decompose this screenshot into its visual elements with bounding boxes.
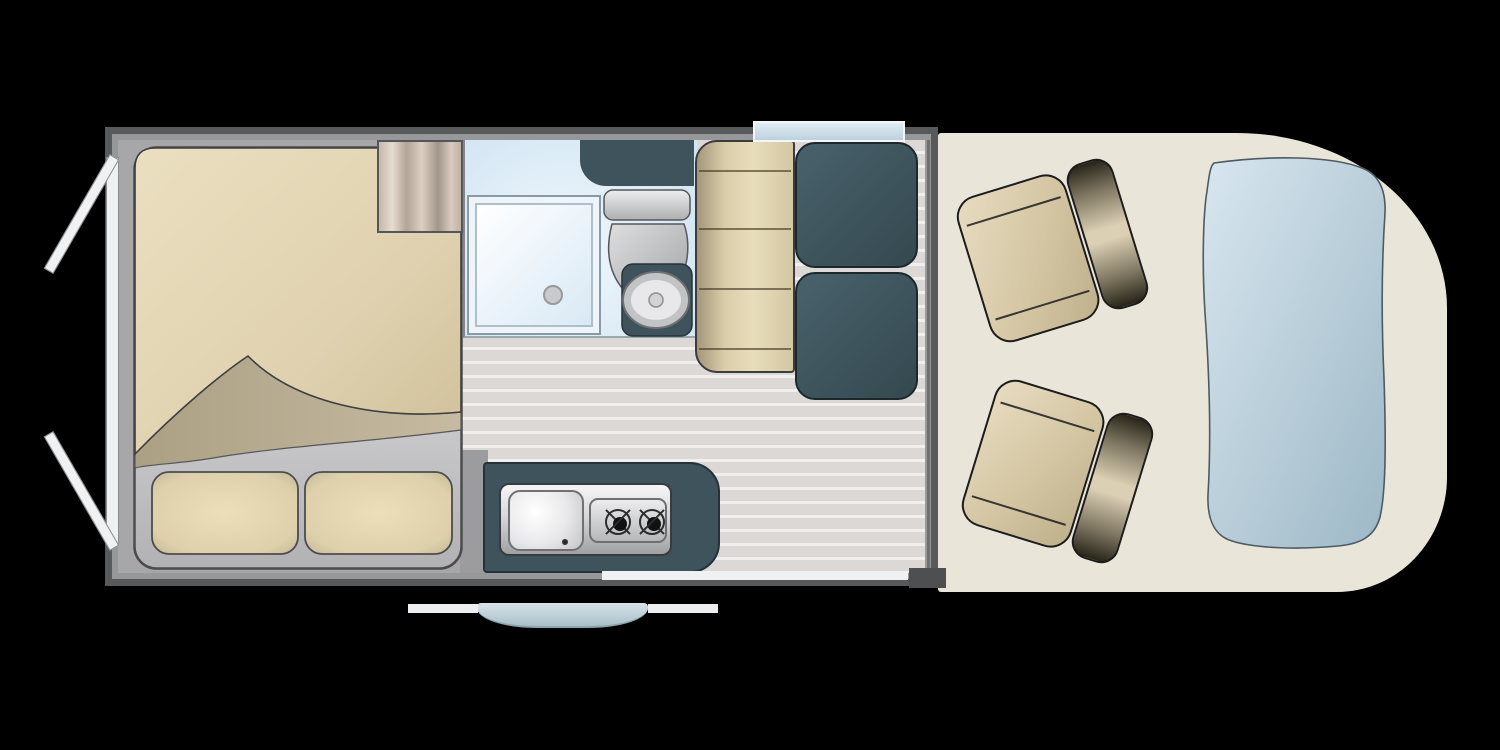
- side-rail-left: [408, 604, 478, 613]
- bathroom-cabinet: [580, 140, 694, 186]
- rear-door-opening: [106, 157, 119, 545]
- shower-drain: [543, 285, 563, 305]
- cushion-seam: [967, 196, 1061, 227]
- dinette-seat-cushion: [795, 272, 918, 400]
- windshield: [1180, 153, 1402, 557]
- pillow-left: [152, 472, 298, 554]
- cushion-seam: [1000, 402, 1094, 433]
- backrest-seam: [699, 170, 791, 172]
- toilet-flush: [649, 293, 663, 307]
- cushion-seam: [972, 495, 1066, 526]
- living-interior: [118, 140, 925, 573]
- burner-center: [613, 517, 627, 531]
- toilet: [600, 182, 696, 340]
- burner-center: [647, 517, 661, 531]
- sink-hob-unit: [499, 483, 672, 556]
- dinette-backrest: [695, 140, 795, 373]
- sliding-door-sill: [602, 571, 908, 580]
- cushion-seam: [995, 290, 1089, 321]
- shower-tray: [467, 195, 601, 335]
- cab-partition-line: [927, 140, 930, 573]
- toilet-tank: [604, 190, 690, 220]
- hob-burner: [605, 509, 631, 535]
- backrest-seam: [699, 288, 791, 290]
- backrest-seam: [699, 348, 791, 350]
- cab-partition-post: [909, 568, 946, 588]
- hob-burner: [639, 509, 665, 535]
- shower-tray-inner: [475, 203, 593, 327]
- pillow-right: [305, 472, 452, 554]
- sink-drain: [562, 539, 568, 545]
- dinette-window: [753, 121, 905, 142]
- wardrobe: [377, 140, 463, 233]
- entry-step: [477, 603, 648, 628]
- dinette-seat-cushion: [795, 142, 918, 268]
- kitchen-sink: [508, 490, 584, 551]
- side-rail-right: [648, 604, 718, 613]
- two-burner-hob: [589, 498, 667, 543]
- kitchen-counter: [483, 462, 720, 573]
- backrest-seam: [699, 228, 791, 230]
